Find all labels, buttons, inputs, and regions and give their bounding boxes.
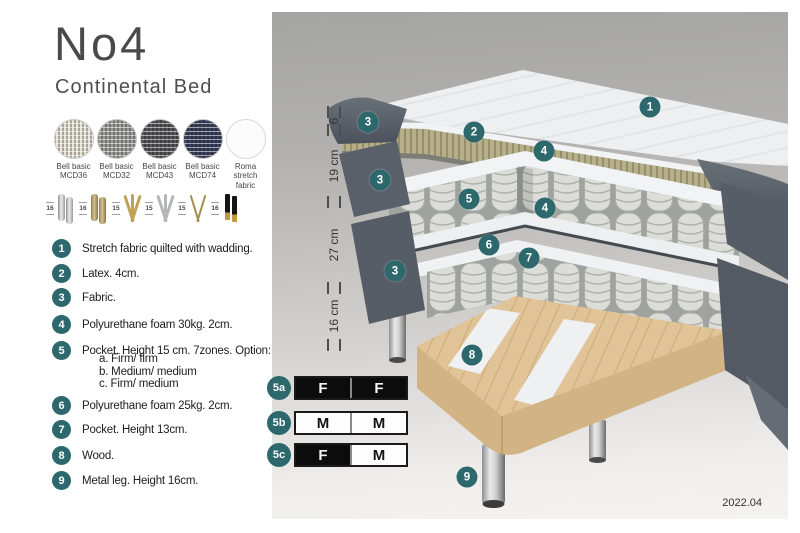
dimension-label: 19 cm (327, 150, 341, 183)
fabric-swatch-label: Bell basicMCD43 (142, 162, 176, 181)
leg-cylinder-brass-icon (90, 191, 109, 225)
fabric-swatch[interactable]: Bell basicMCD36 (52, 119, 95, 190)
firmness-box: M M (294, 411, 408, 435)
fabric-swatch-icon (183, 119, 223, 159)
firmness-badge: 5b (267, 411, 291, 435)
leg-twist-gold-icon (123, 191, 142, 225)
firmness-box: F F (294, 376, 408, 400)
callout-badge: 4 (535, 198, 556, 219)
pocket-option-sublist: a. Firm/ firm b. Medium/ medium c. Firm/… (99, 353, 197, 391)
part-number-badge: 4 (52, 315, 71, 334)
firmness-option-5c: 5c F M (267, 443, 408, 467)
callout-badge: 3 (358, 112, 379, 133)
dimension-label: 16 cm (327, 300, 341, 333)
dimension-label: 6 (327, 118, 341, 125)
bed-cutaway-panel: 6 19 cm 27 cm 16 cm 1 2 3 4 3 5 4 6 7 3 … (272, 12, 788, 519)
fabric-swatch-icon (226, 119, 266, 159)
dimension-label: 27 cm (327, 229, 341, 262)
leg-cylinder-chrome-icon (57, 191, 76, 225)
parts-list-item: 3Fabric. (52, 288, 116, 307)
parts-list-item: 4Polyurethane foam 30kg. 2cm. (52, 315, 232, 334)
ruler-tick (327, 106, 329, 118)
callout-badge: 2 (464, 122, 485, 143)
parts-list-item: 8Wood. (52, 446, 114, 465)
ruler-tick (339, 124, 341, 136)
callout-badge: 4 (534, 141, 555, 162)
fabric-swatch-label: Bell basicMCD32 (99, 162, 133, 181)
firmness-option-5a: 5a F F (267, 376, 408, 400)
leg-option[interactable]: 16 (78, 188, 109, 228)
fabric-swatch-label: Bell basicMCD36 (56, 162, 90, 181)
leg-option[interactable]: 15 (177, 188, 208, 228)
page-title: No4 (54, 20, 149, 67)
part-number-badge: 3 (52, 288, 71, 307)
leg-option-row: 16 16 15 15 15 16 (45, 188, 241, 228)
leg-hairpin-icon (189, 191, 208, 225)
callout-badge: 3 (385, 261, 406, 282)
part-number-badge: 8 (52, 446, 71, 465)
firmness-box: F M (294, 443, 408, 467)
part-number-badge: 6 (52, 396, 71, 415)
ruler-tick (327, 339, 329, 351)
callout-badge: 8 (462, 345, 483, 366)
callout-badge: 5 (459, 189, 480, 210)
parts-list-item: 7Pocket. Height 13cm. (52, 420, 187, 439)
version-label: 2022.04 (722, 497, 762, 509)
page-subtitle: Continental Bed (55, 76, 212, 99)
fabric-swatch-icon (97, 119, 137, 159)
ruler-tick (339, 106, 341, 118)
part-number-badge: 5 (52, 341, 71, 360)
parts-list-item: 9Metal leg. Height 16cm. (52, 471, 198, 490)
callout-badge: 6 (479, 235, 500, 256)
fabric-swatch[interactable]: Bell basicMCD32 (95, 119, 138, 190)
leg-taper-black-gold-icon (222, 191, 241, 225)
spec-sheet: No4 Continental Bed Bell basicMCD36 Bell… (0, 0, 800, 533)
ruler-tick (327, 282, 329, 294)
firmness-badge: 5c (267, 443, 291, 467)
part-number-badge: 2 (52, 264, 71, 283)
parts-list-item: 1Stretch fabric quilted with wadding. (52, 239, 253, 258)
fabric-swatch[interactable]: Bell basicMCD43 (138, 119, 181, 190)
leg-twist-silver-icon (156, 191, 175, 225)
ruler-tick (339, 339, 341, 351)
leg-option[interactable]: 16 (210, 188, 241, 228)
callout-badge: 9 (457, 467, 478, 488)
fabric-swatch-icon (140, 119, 180, 159)
fabric-swatch-label: Romastretch fabric (224, 162, 267, 190)
fabric-swatch-row: Bell basicMCD36 Bell basicMCD32 Bell bas… (52, 119, 267, 190)
leg-option[interactable]: 15 (111, 188, 142, 228)
leg-option[interactable]: 15 (144, 188, 175, 228)
ruler-tick (339, 282, 341, 294)
fabric-swatch-label: Bell basicMCD74 (185, 162, 219, 181)
ruler-tick (327, 196, 329, 208)
part-number-badge: 7 (52, 420, 71, 439)
fabric-swatch-icon (54, 119, 94, 159)
callout-badge: 1 (640, 97, 661, 118)
part-number-badge: 9 (52, 471, 71, 490)
firmness-badge: 5a (267, 376, 291, 400)
callout-badge: 7 (519, 248, 540, 269)
parts-list-item: 2Latex. 4cm. (52, 264, 139, 283)
fabric-swatch[interactable]: Bell basicMCD74 (181, 119, 224, 190)
ruler-tick (339, 196, 341, 208)
fabric-swatch[interactable]: Romastretch fabric (224, 119, 267, 190)
part-number-badge: 1 (52, 239, 71, 258)
firmness-option-5b: 5b M M (267, 411, 408, 435)
ruler-tick (327, 124, 329, 136)
callout-badge: 3 (370, 170, 391, 191)
parts-list-item: 6Polyurethane foam 25kg. 2cm. (52, 396, 232, 415)
leg-option[interactable]: 16 (45, 188, 76, 228)
